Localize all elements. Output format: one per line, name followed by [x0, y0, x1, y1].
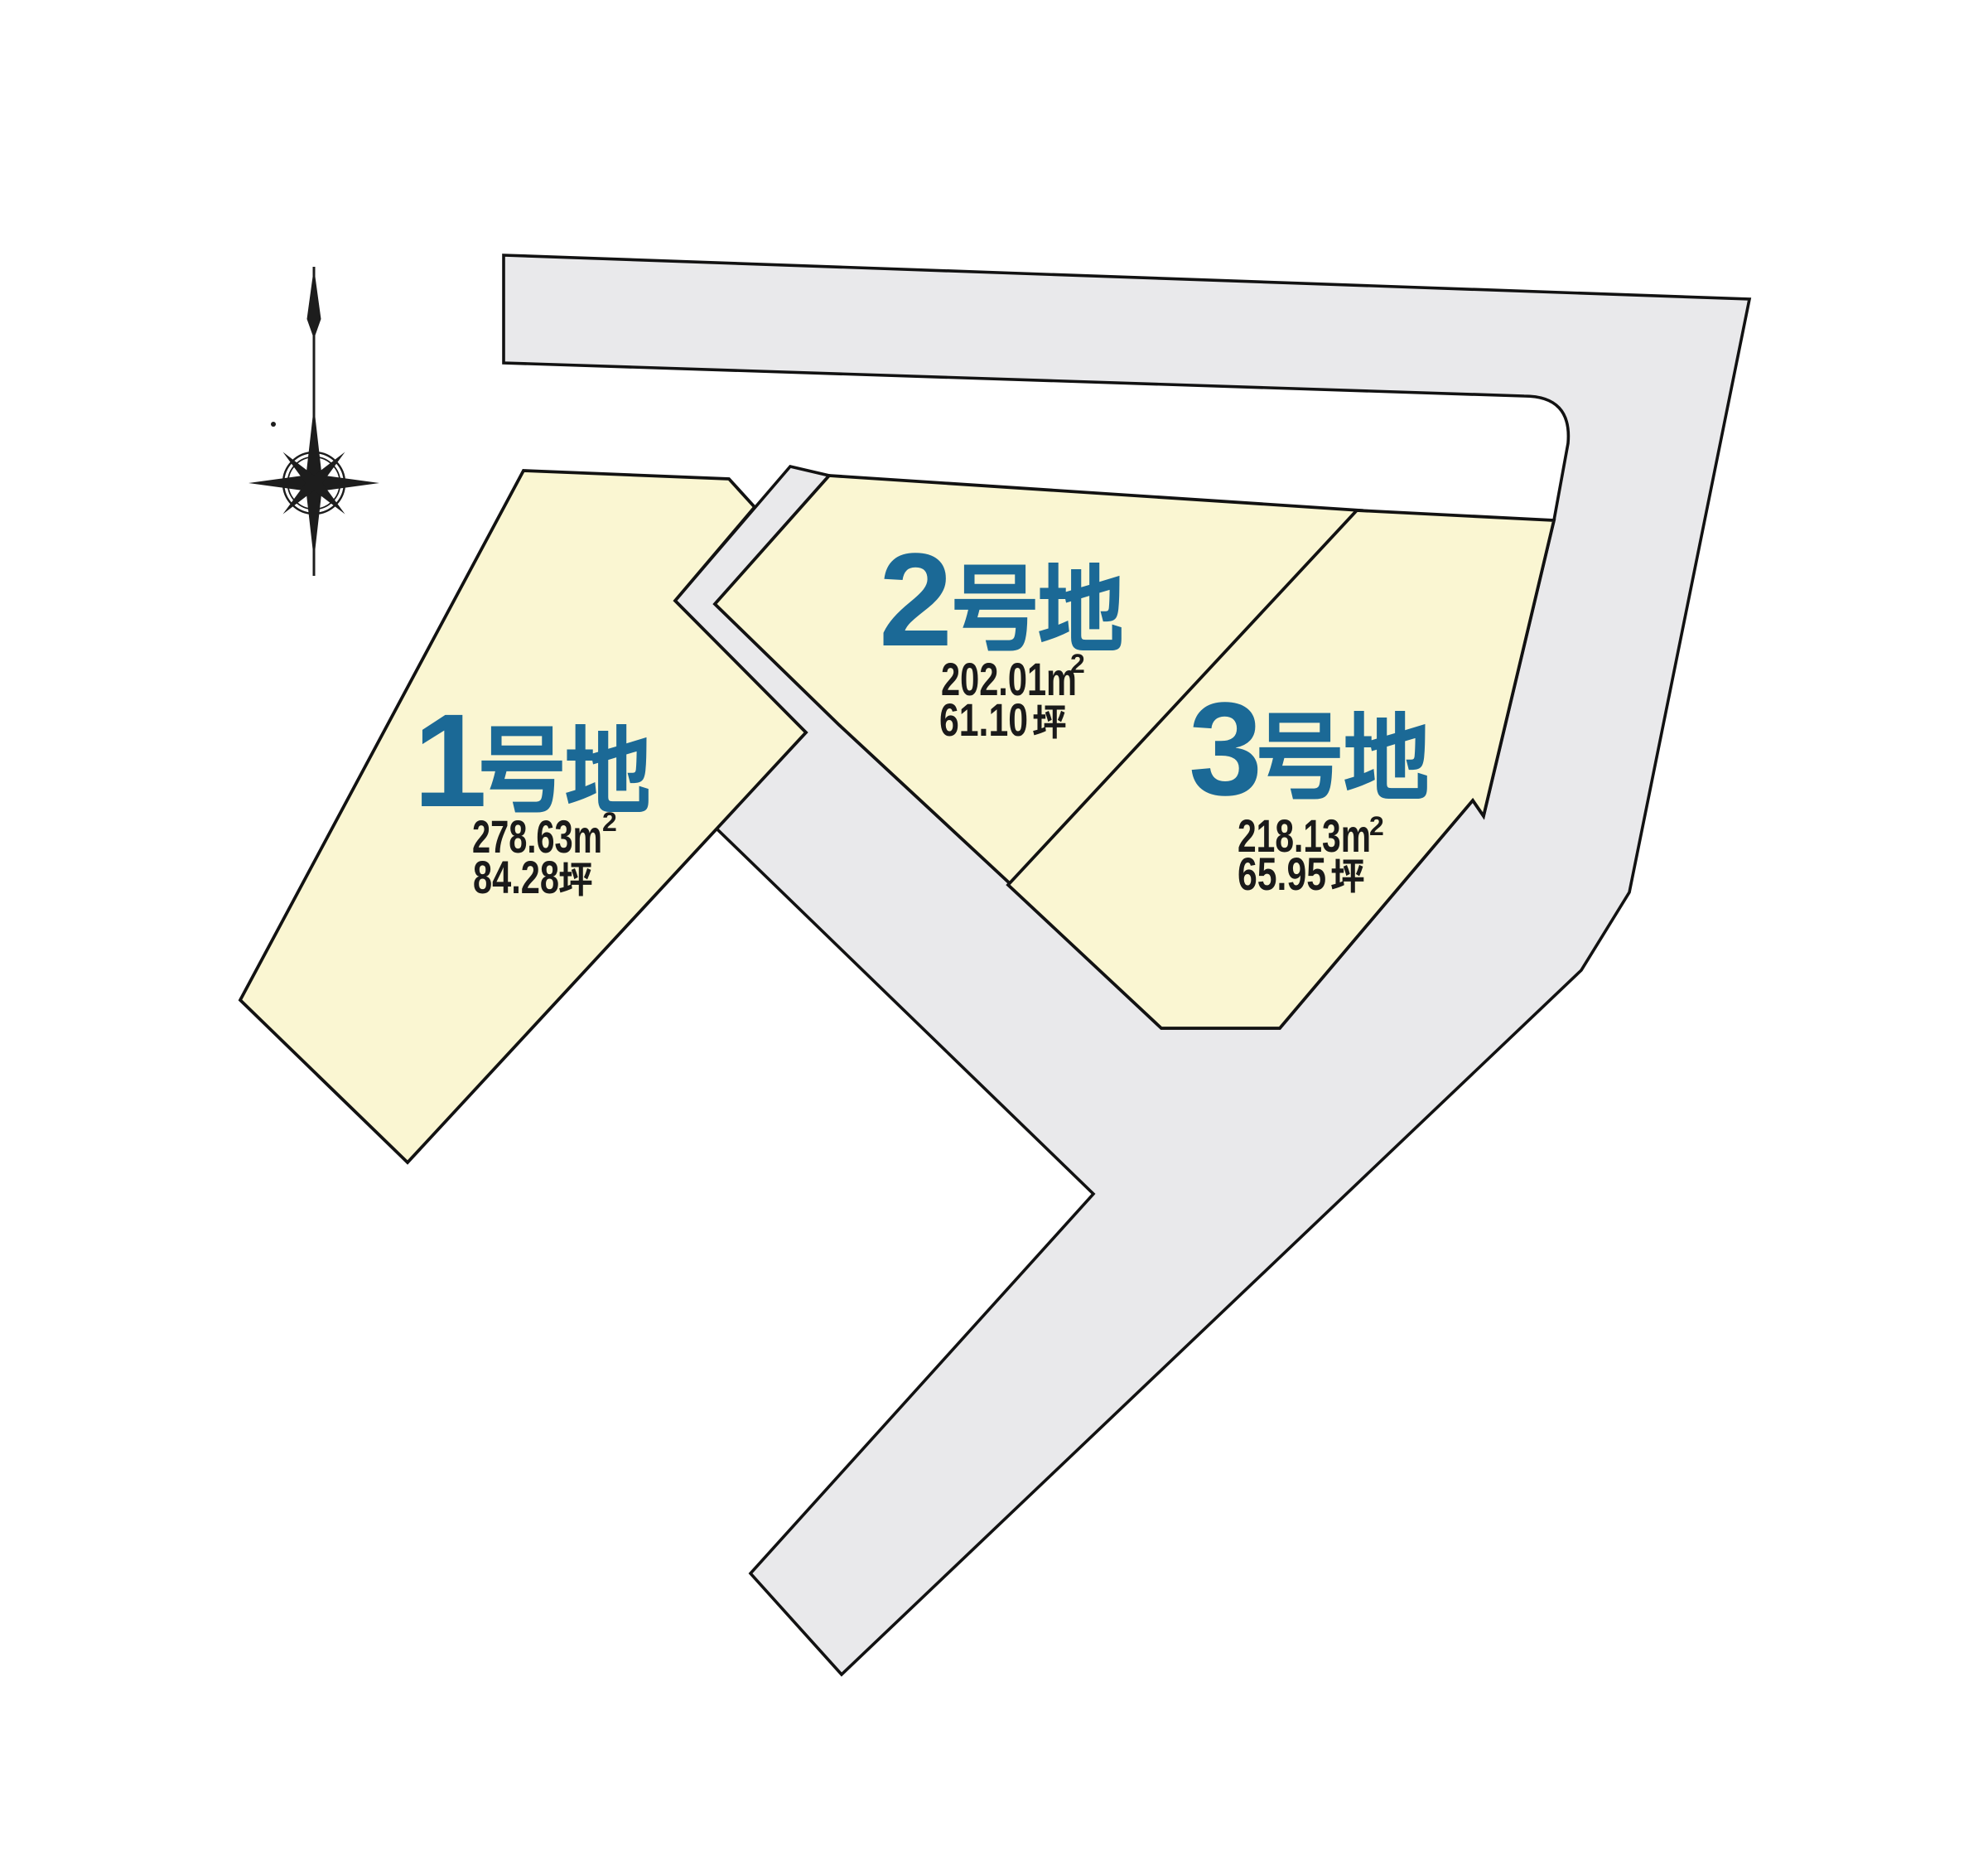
svg-text:2: 2: [602, 807, 617, 837]
svg-text:2: 2: [1070, 649, 1085, 679]
svg-text:65.95: 65.95: [1238, 848, 1326, 900]
svg-text:2: 2: [1369, 811, 1384, 841]
svg-text:84.28: 84.28: [473, 851, 559, 903]
svg-text:61.10: 61.10: [939, 693, 1028, 746]
svg-text:2: 2: [879, 525, 953, 674]
svg-text:3: 3: [1189, 674, 1262, 823]
